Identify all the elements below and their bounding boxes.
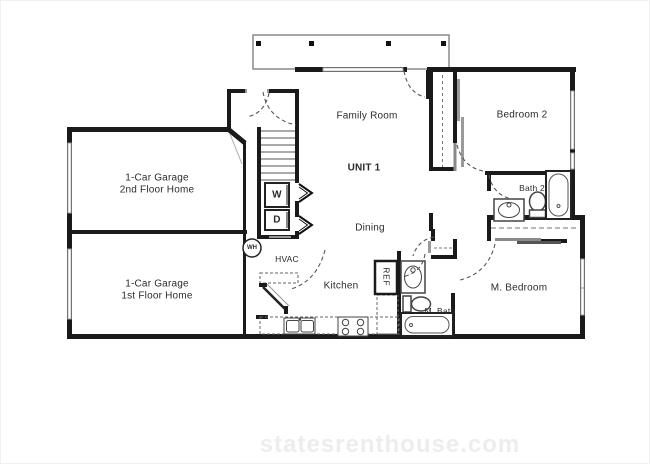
linen-door-jamb [428,241,431,253]
closet-slider-door [517,241,561,244]
m-bath-toilet-icon [403,296,411,312]
m-bedroom-label: M. Bedroom [491,283,547,294]
bedroom2-window-icon [571,153,574,169]
garage-door-icon [68,249,71,319]
bath2-door-arc [489,175,512,199]
garage-lower-line1: 1-Car Garage [121,279,192,291]
bath2-fixtures [494,171,571,221]
unit-label: UNIT 1 [348,163,381,174]
washer-label: W [272,190,282,201]
kitchen-counter [260,317,399,334]
watermark-text: statesrenthouse.com [260,431,520,459]
bedroom2-door-leaf [454,143,457,171]
deck-post-icon [441,41,446,46]
bedroom2-window-icon [571,91,574,149]
floor-plan-drawing [1,1,650,464]
deck-post-icon [256,41,261,46]
bath2-tub-icon [546,171,571,219]
bath2-toilet-icon [530,192,546,211]
deck-door-arc [404,71,425,97]
kitchen-counter [377,295,398,334]
garage-lower-label: 1-Car Garage 1st Floor Home [121,279,192,302]
family-room-label: Family Room [336,111,397,122]
garage-lower-line2: 1st Floor Home [121,290,192,302]
dining-label: Dining [355,223,385,234]
deck-post-icon [386,41,391,46]
garage-door-icon [68,143,71,213]
garage-upper-line2: 2nd Floor Home [120,184,195,196]
bifold-door-icon [299,184,312,202]
m-bath-fixtures [401,261,453,336]
bifold-door-icon [299,216,312,234]
garage-upper-label: 1-Car Garage 2nd Floor Home [120,173,195,196]
kitchen-label: Kitchen [324,281,359,292]
hvac-opening [269,236,291,238]
stairs [261,131,295,180]
door-jamb [267,89,269,93]
dryer-label: D [273,215,280,226]
refrigerator-label: REF [382,268,391,287]
hall-closet-door [457,79,460,121]
hvac-closet [259,273,298,314]
m-bedroom-window-icon [581,259,584,315]
bedroom2-label: Bedroom 2 [497,110,548,121]
water-heater-label: WH [247,245,257,251]
floor-plan: Family Room UNIT 1 Dining Kitchen HVAC B… [0,0,650,464]
bath2-label: Bath 2 [519,183,545,193]
closet-slider-door [495,238,541,241]
garage-upper-line1: 1-Car Garage [120,173,195,185]
deck-outline [253,35,449,69]
entry-door-arc [247,93,269,117]
door-jamb [245,89,247,93]
m-bedroom-door-arc [460,244,495,280]
deck-post-icon [309,41,314,46]
hvac-label: HVAC [275,254,299,264]
family-room-window-icon [323,68,403,71]
m-bath-label: M. Bath [425,306,456,316]
bedroom2-door-arc [457,145,483,171]
